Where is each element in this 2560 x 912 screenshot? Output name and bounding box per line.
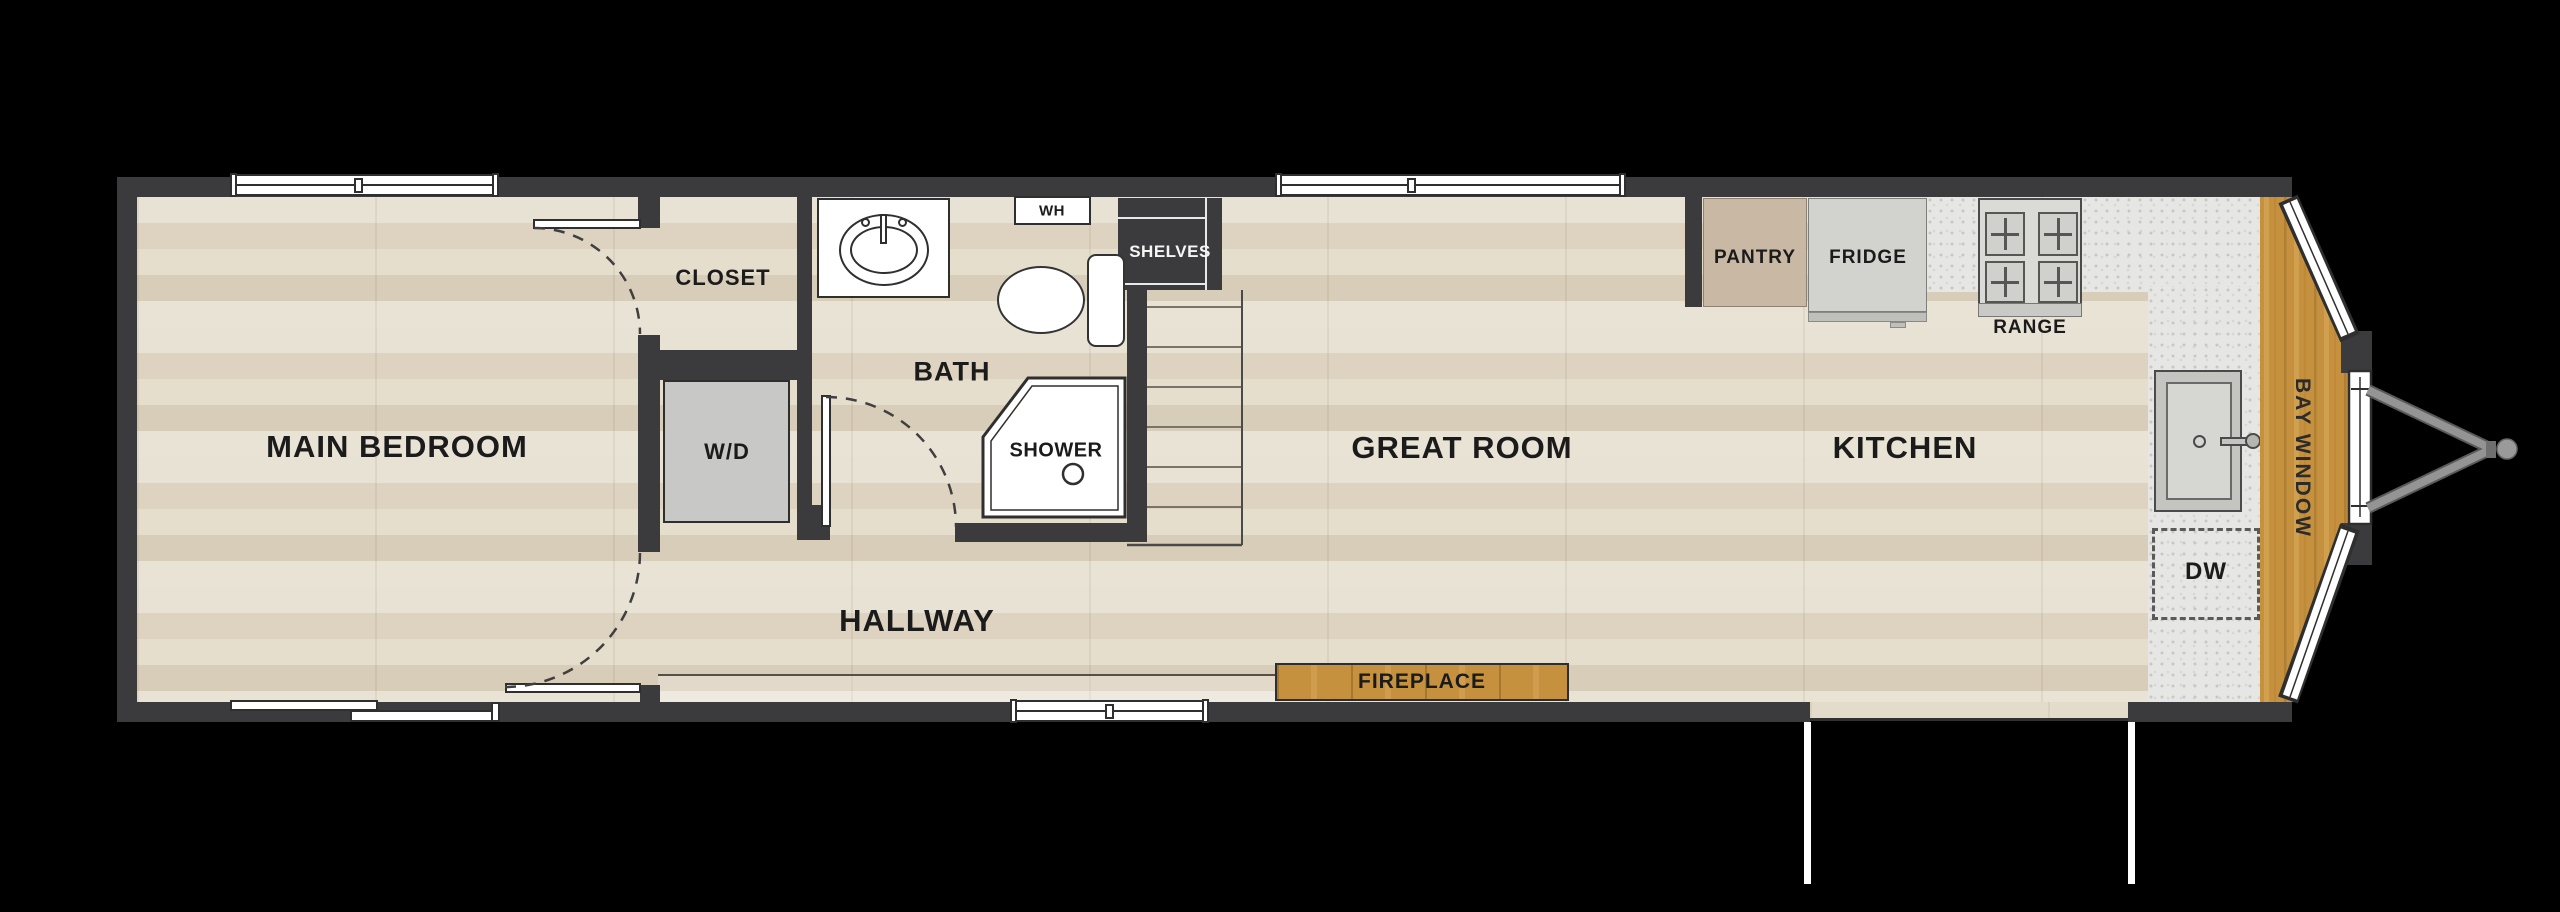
sink-drain [2193,435,2206,448]
fixture-label-range: RANGE [1993,317,2067,339]
window-cap [1202,699,1209,723]
window-mullion [1105,704,1114,719]
bathroom-vanity [817,198,950,298]
faucet-handle [861,218,870,227]
window-bedroom-bottom [230,700,498,722]
fixture-label-pantry: PANTRY [1714,247,1796,269]
wall-pantry-stub [1685,197,1702,307]
window-glass-line [237,184,492,186]
toilet-tank [1087,254,1125,347]
fixture-label-water-heater: WH [1039,203,1065,220]
wall-stairs-side [1127,290,1147,542]
window-glass-line [1282,184,1619,186]
entry-door-leaf [505,683,641,693]
window-bedroom-top [230,174,499,196]
window-cap [1619,173,1626,197]
burner [2038,212,2078,256]
range-front-band [1978,303,2082,317]
wall-bath-bottom [955,523,1145,542]
wall-entry-door-stub [640,685,660,702]
hitch-ball [2497,439,2517,459]
window-mullion [1407,178,1416,193]
wall-closet-door-stub [638,197,660,228]
fixture-label-shower: SHOWER [1010,440,1103,463]
wall-left [117,177,137,722]
fixture-label-shelves: SHELVES [1129,242,1211,262]
floorplan-canvas: MAIN BEDROOM CLOSET BATH HALLWAY GREAT R… [0,0,2560,912]
wall-closet-bath [797,197,812,540]
wall-closet-bottom [660,350,812,368]
shelves-shelf-line-bottom [1118,283,1205,285]
bay-flat-window [2349,371,2371,524]
closet-door-leaf [533,219,641,229]
fixture-label-washer-dryer: W/D [704,439,750,465]
bay-corner-top [2341,331,2372,373]
porch-post-left [1804,722,1811,884]
bay-corner-bottom [2341,523,2372,565]
wall-bedroom-divider [638,335,660,552]
fixture-label-dishwasher: DW [2185,558,2227,586]
window-greatroom-top [1275,174,1626,196]
fixture-label-fridge: FRIDGE [1829,247,1907,269]
fridge-handle [1890,322,1906,328]
room-label-hallway: HALLWAY [839,603,995,639]
bath-door-leaf [821,395,831,527]
porch-post-right [2128,722,2135,884]
fixture-label-fireplace: FIREPLACE [1358,670,1486,694]
window-cap [492,173,499,197]
counter-top-run [2082,197,2260,292]
entry-door-jamb [491,702,500,722]
burner [1985,212,2025,256]
room-label-closet: CLOSET [675,265,770,291]
fridge-door-lip [1808,312,1927,322]
hallway-floor-strip [658,674,1277,702]
faucet-handle [898,218,907,227]
trailer-hitch [2368,390,2517,508]
shelves-shelf-line-top [1118,217,1205,219]
room-label-kitchen: KITCHEN [1833,430,1978,466]
room-label-main-bedroom: MAIN BEDROOM [266,429,528,465]
counter-between-fridge-range [1927,197,1978,292]
burner [1985,261,2025,303]
range-unit [1978,198,2082,308]
window-cap [1010,699,1017,723]
open-floor-edge [1810,702,2128,721]
toilet-bowl [997,266,1085,334]
window-pane [350,710,498,722]
wall-bottom-right [2128,702,2292,722]
wall-wd-top [660,368,797,380]
burner [2038,261,2078,303]
hitch-coupler [2486,441,2496,458]
vanity-faucet [880,214,887,244]
room-label-bath: BATH [914,357,991,388]
fixture-label-bay-window: BAY WINDOW [2290,378,2314,538]
window-hallway-bottom [1010,700,1209,722]
bay-slant-window-top [2288,199,2350,338]
window-cap [230,173,237,197]
bay-slant-window-bottom [2288,527,2350,700]
room-label-great-room: GREAT ROOM [1351,430,1572,466]
sink-faucet-base [2245,433,2261,449]
window-cap [1275,173,1282,197]
window-mullion [354,178,363,193]
